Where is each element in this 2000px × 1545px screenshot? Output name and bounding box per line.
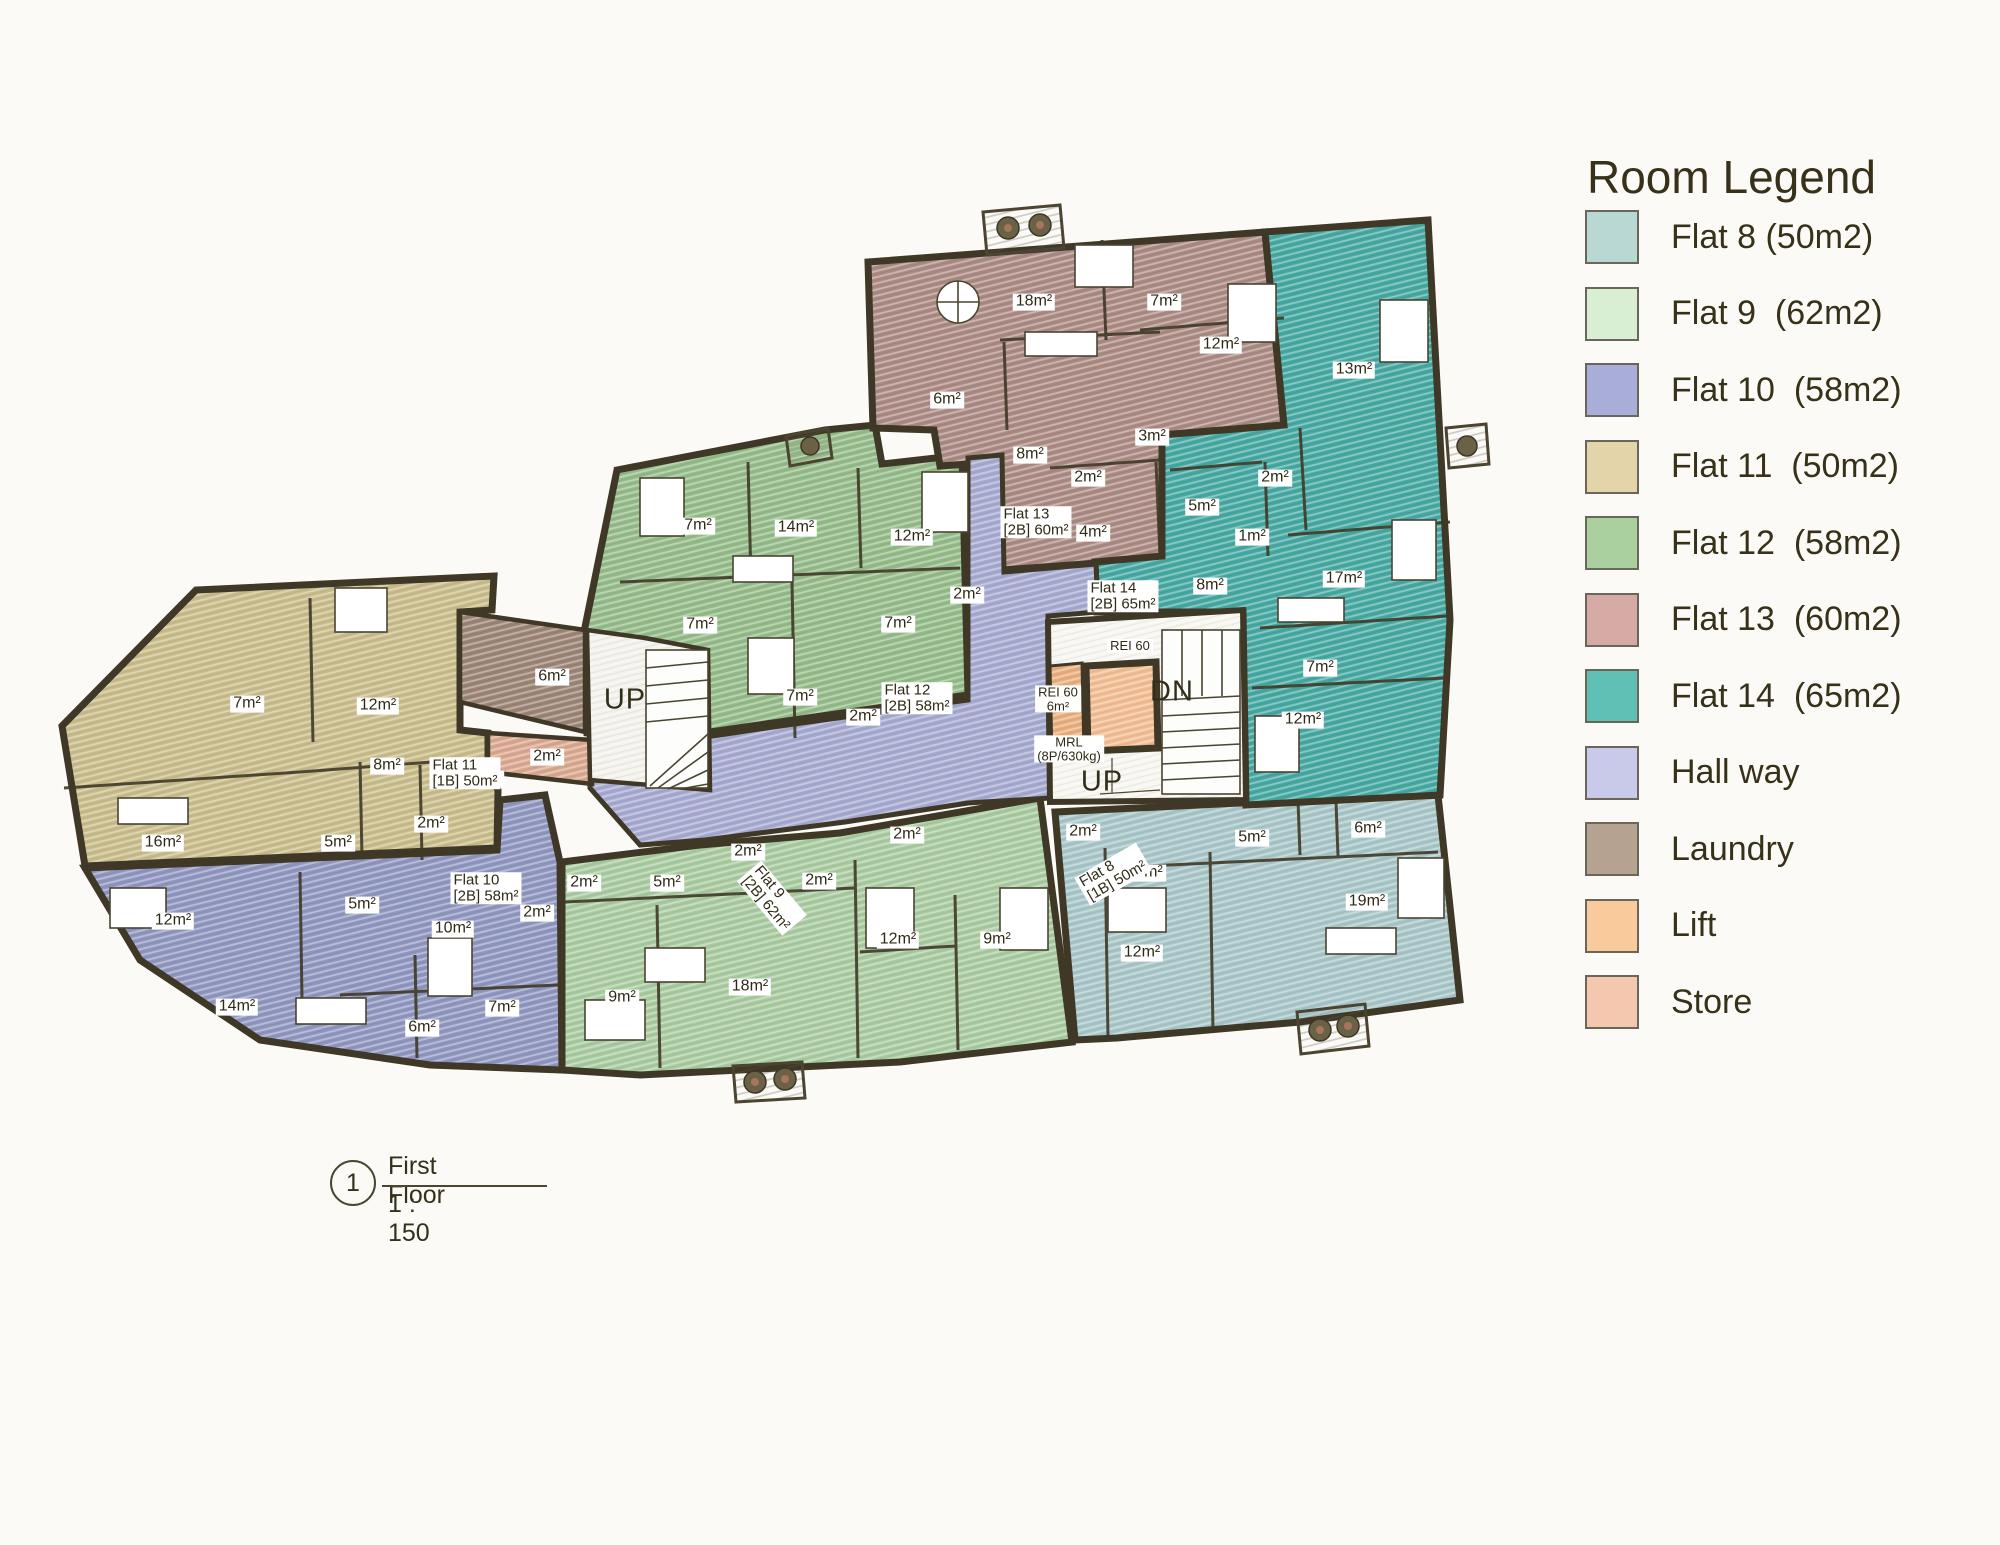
- bed: [1228, 284, 1276, 342]
- legend-item-flat12: Flat 12 (58m2): [1585, 516, 1995, 570]
- legend-label-flat12: Flat 12 (58m2): [1671, 524, 1902, 563]
- sofa: [118, 798, 188, 824]
- legend-swatch-flat12: [1585, 516, 1639, 570]
- bed: [335, 588, 387, 632]
- legend-label-flat13: Flat 13 (60m2): [1671, 600, 1902, 639]
- legend-label-flat11: Flat 11 (50m2): [1671, 447, 1899, 486]
- bed: [1108, 888, 1166, 932]
- legend-swatch-flat11: [1585, 440, 1639, 494]
- bed: [1000, 888, 1048, 950]
- view-scale: 1 : 150: [388, 1190, 430, 1248]
- title-underline: [382, 1185, 547, 1187]
- left-staircase: [646, 650, 708, 789]
- legend-item-flat10: Flat 10 (58m2): [1585, 363, 1995, 417]
- lift-lobby-area-hatch: [1050, 663, 1084, 757]
- legend-label-laundry: Laundry: [1671, 830, 1794, 869]
- view-number-bubble: 1: [330, 1160, 376, 1206]
- legend-swatch-lift: [1585, 899, 1639, 953]
- laundry-area-hatch: [460, 612, 585, 732]
- legend-label-flat9: Flat 9 (62m2): [1671, 294, 1883, 333]
- legend-item-laundry: Laundry: [1585, 822, 1995, 876]
- legend-label-flat10: Flat 10 (58m2): [1671, 371, 1902, 410]
- legend-swatch-flat8: [1585, 210, 1639, 264]
- legend-label-store: Store: [1671, 983, 1752, 1022]
- legend-swatch-flat9: [1585, 287, 1639, 341]
- legend-swatch-flat14: [1585, 669, 1639, 723]
- legend-item-store: Store: [1585, 975, 1995, 1029]
- floor-plan-sheet: 18m²7m²12m²6m²3m²8m²2m²4m²Flat 13 [2B] 6…: [0, 0, 2000, 1545]
- table: [645, 948, 705, 982]
- legend-swatch-flat10: [1585, 363, 1639, 417]
- bed: [748, 638, 794, 694]
- legend-item-flat8: Flat 8 (50m2): [1585, 210, 1995, 264]
- legend-item-flat14: Flat 14 (65m2): [1585, 669, 1995, 723]
- bed: [1075, 245, 1133, 287]
- sofa: [296, 998, 366, 1024]
- sofa: [1025, 332, 1097, 356]
- bed: [1255, 716, 1299, 772]
- legend-label-hall: Hall way: [1671, 753, 1799, 792]
- legend-label-lift: Lift: [1671, 906, 1716, 945]
- bed: [1380, 300, 1428, 362]
- table: [733, 556, 793, 582]
- room-legend: Room Legend Flat 8 (50m2)Flat 9 (62m2)Fl…: [1585, 150, 1995, 1052]
- legend-swatch-flat13: [1585, 593, 1639, 647]
- legend-item-hall: Hall way: [1585, 746, 1995, 800]
- legend-item-flat11: Flat 11 (50m2): [1585, 440, 1995, 494]
- legend-swatch-laundry: [1585, 822, 1639, 876]
- sofa: [1278, 598, 1344, 622]
- sofa: [1326, 928, 1396, 954]
- bed: [1392, 520, 1436, 580]
- legend-item-flat9: Flat 9 (62m2): [1585, 287, 1995, 341]
- lift-car-hatch: [1086, 662, 1158, 751]
- legend-item-lift: Lift: [1585, 899, 1995, 953]
- legend-swatch-store: [1585, 975, 1639, 1029]
- legend-label-flat14: Flat 14 (65m2): [1671, 677, 1902, 716]
- bed: [640, 478, 684, 536]
- legend-item-flat13: Flat 13 (60m2): [1585, 593, 1995, 647]
- bed: [585, 1000, 645, 1040]
- bed: [922, 472, 968, 532]
- bed: [428, 938, 472, 996]
- bed: [110, 888, 166, 928]
- bed: [1398, 858, 1444, 918]
- legend-label-flat8: Flat 8 (50m2): [1671, 218, 1873, 257]
- store-area-hatch: [488, 733, 592, 784]
- legend-rows: Flat 8 (50m2)Flat 9 (62m2)Flat 10 (58m2)…: [1585, 210, 1995, 1029]
- bed: [866, 888, 914, 948]
- legend-swatch-hall: [1585, 746, 1639, 800]
- balcony-top: [983, 205, 1064, 255]
- legend-title: Room Legend: [1587, 150, 1995, 204]
